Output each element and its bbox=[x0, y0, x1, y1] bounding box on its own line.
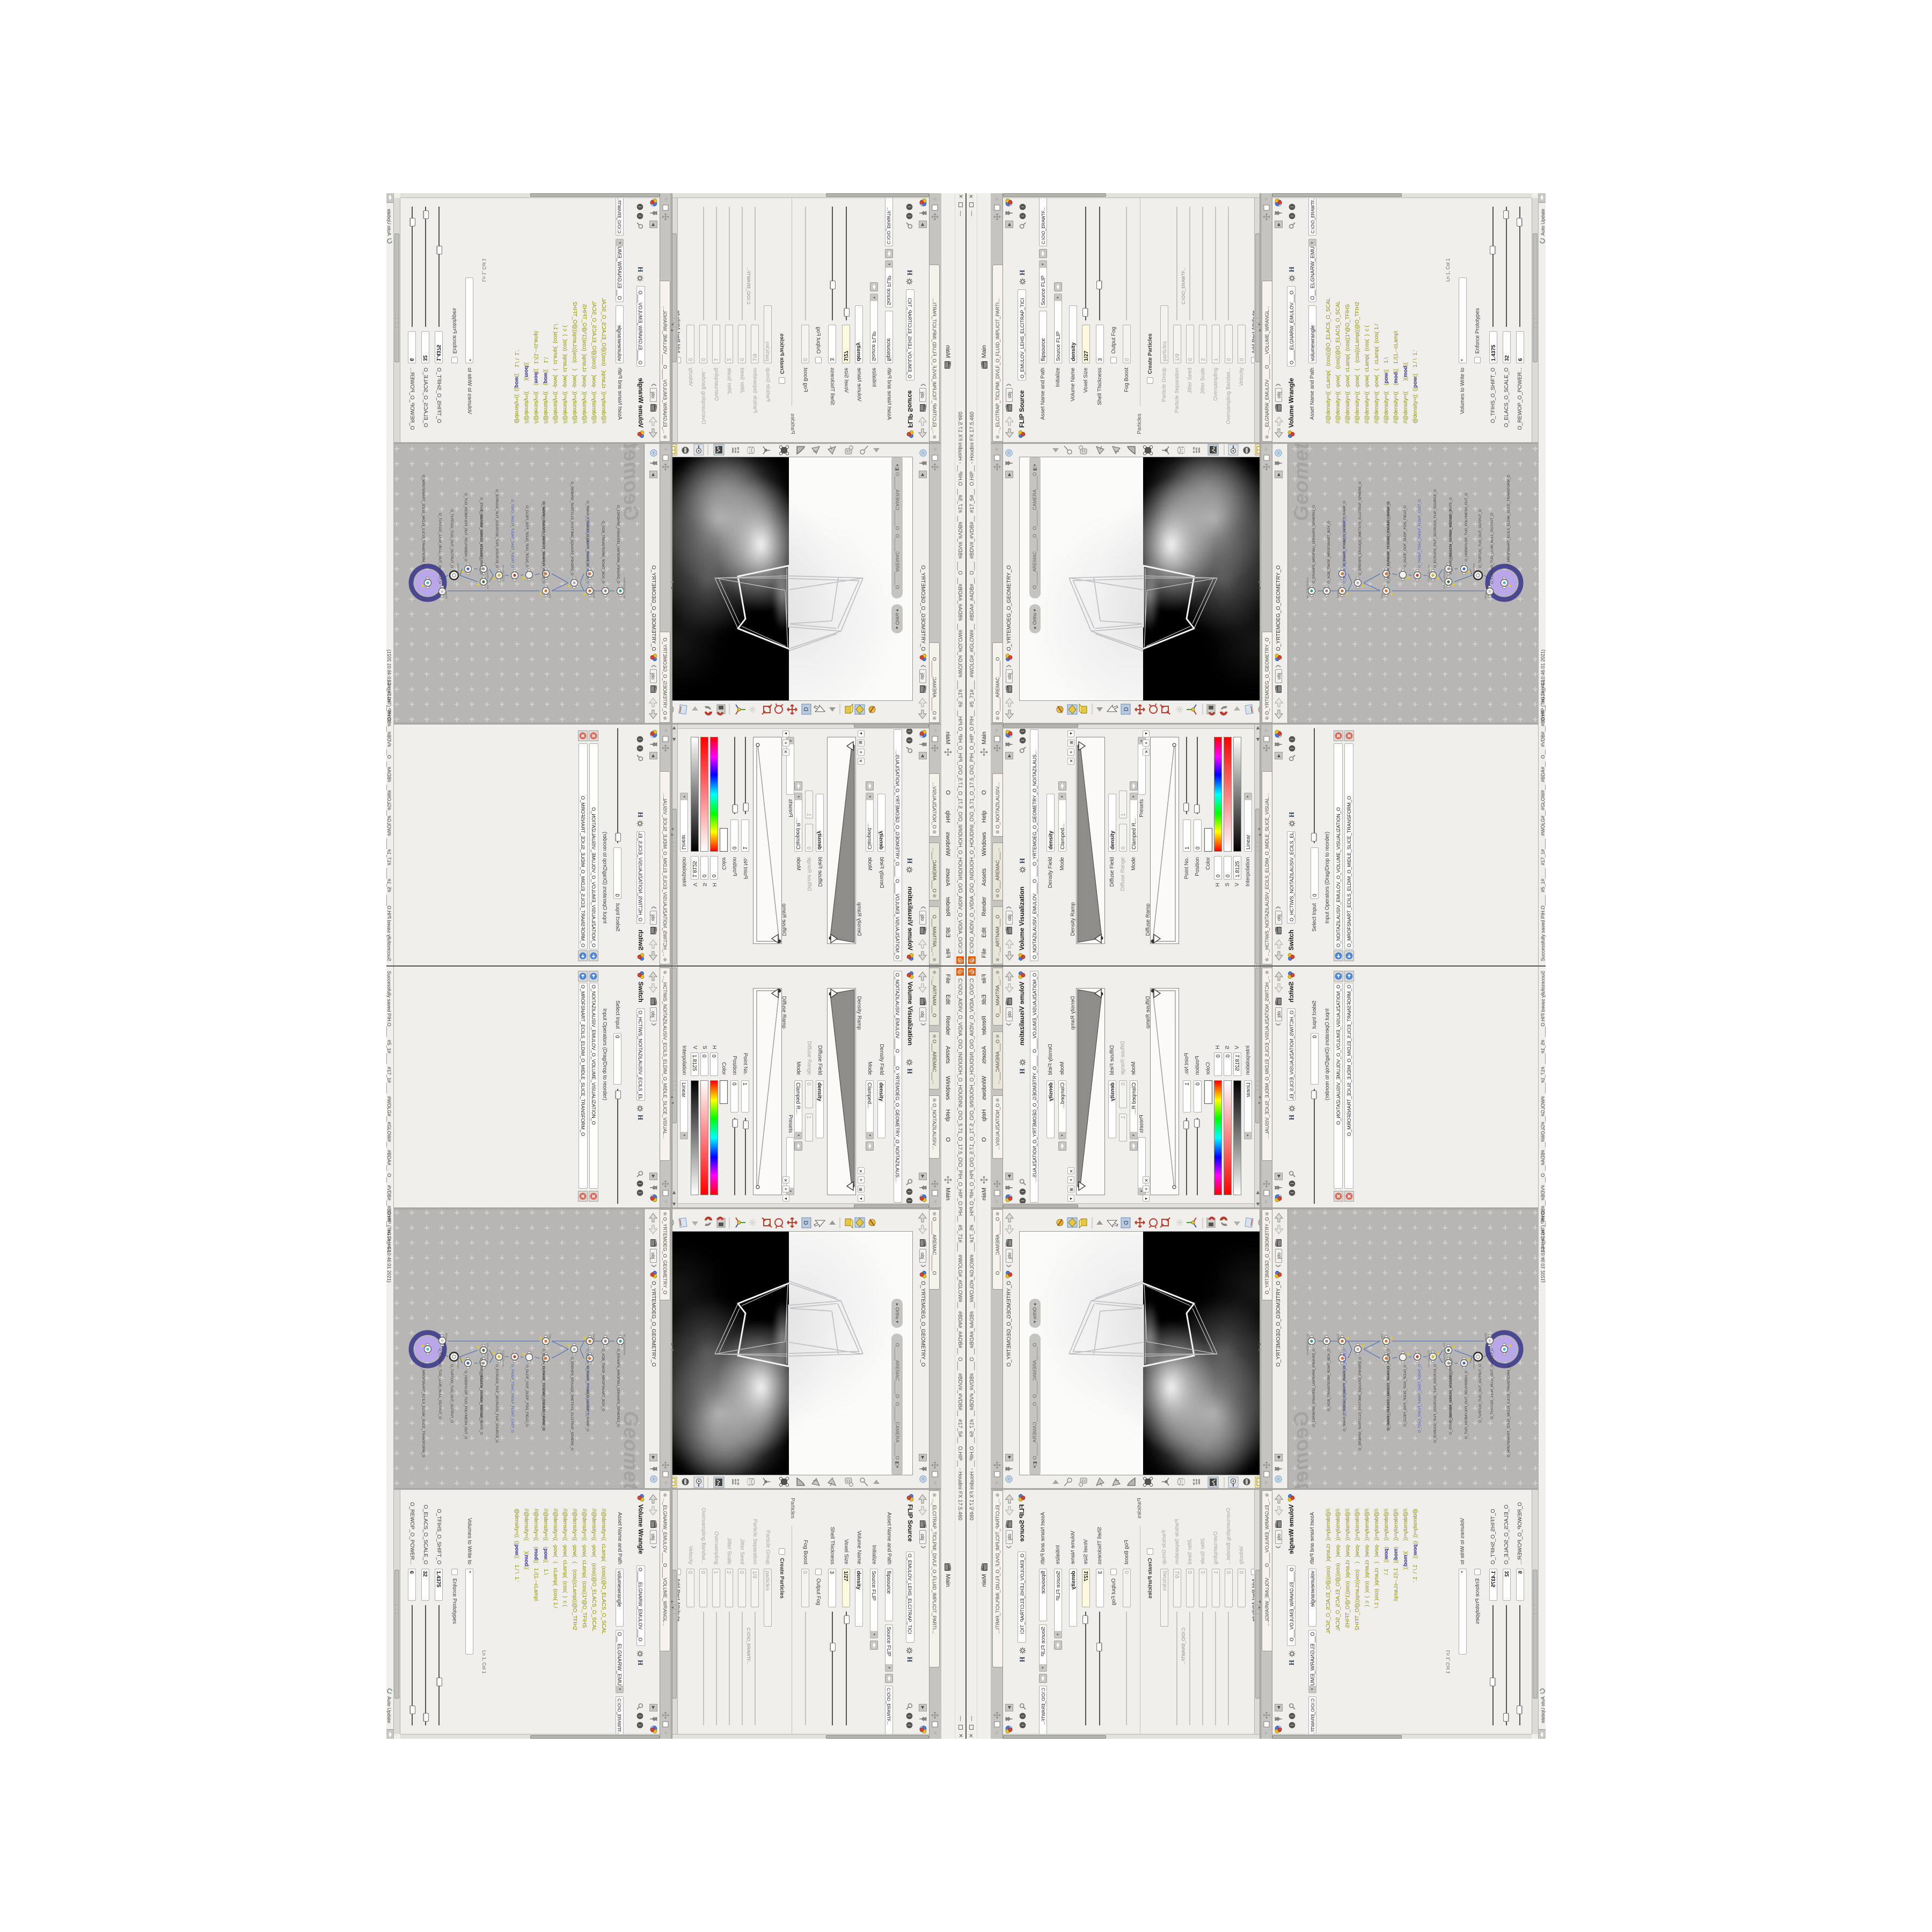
svg-text:i: i bbox=[1290, 739, 1295, 740]
svg-text:i: i bbox=[1020, 1725, 1026, 1726]
svg-text:D: D bbox=[1123, 1221, 1130, 1225]
svg-text:i: i bbox=[1290, 207, 1295, 208]
svg-text:i: i bbox=[637, 1183, 642, 1184]
svg-text:i: i bbox=[1020, 1716, 1026, 1717]
svg-text:D: D bbox=[1123, 707, 1130, 711]
svg-text:i: i bbox=[1290, 1192, 1295, 1194]
svg-text:i: i bbox=[906, 1191, 912, 1192]
svg-text:i: i bbox=[637, 739, 642, 740]
svg-text:i: i bbox=[1020, 740, 1026, 741]
svg-text:i: i bbox=[1290, 1725, 1295, 1726]
svg-text:i: i bbox=[906, 1716, 912, 1717]
svg-text:i: i bbox=[1290, 1183, 1295, 1184]
svg-text:i: i bbox=[906, 740, 912, 741]
svg-text:D: D bbox=[802, 707, 809, 711]
svg-text:i: i bbox=[1020, 731, 1026, 732]
svg-text:i: i bbox=[637, 748, 642, 749]
svg-text:i: i bbox=[1290, 748, 1295, 749]
svg-text:i: i bbox=[637, 1192, 642, 1194]
svg-text:i: i bbox=[906, 1201, 912, 1202]
svg-text:i: i bbox=[906, 731, 912, 732]
svg-text:i: i bbox=[1290, 1716, 1295, 1717]
svg-text:i: i bbox=[906, 207, 912, 208]
svg-text:i: i bbox=[637, 1725, 642, 1726]
svg-text:i: i bbox=[1020, 207, 1026, 208]
svg-text:i: i bbox=[1290, 216, 1295, 217]
svg-text:i: i bbox=[1020, 1201, 1026, 1202]
svg-text:i: i bbox=[906, 216, 912, 217]
svg-text:i: i bbox=[637, 216, 642, 217]
svg-text:i: i bbox=[637, 207, 642, 208]
svg-text:i: i bbox=[1020, 1191, 1026, 1192]
svg-text:i: i bbox=[906, 1725, 912, 1726]
svg-text:i: i bbox=[637, 1716, 642, 1717]
svg-text:D: D bbox=[802, 1221, 809, 1225]
svg-text:i: i bbox=[1020, 216, 1026, 217]
